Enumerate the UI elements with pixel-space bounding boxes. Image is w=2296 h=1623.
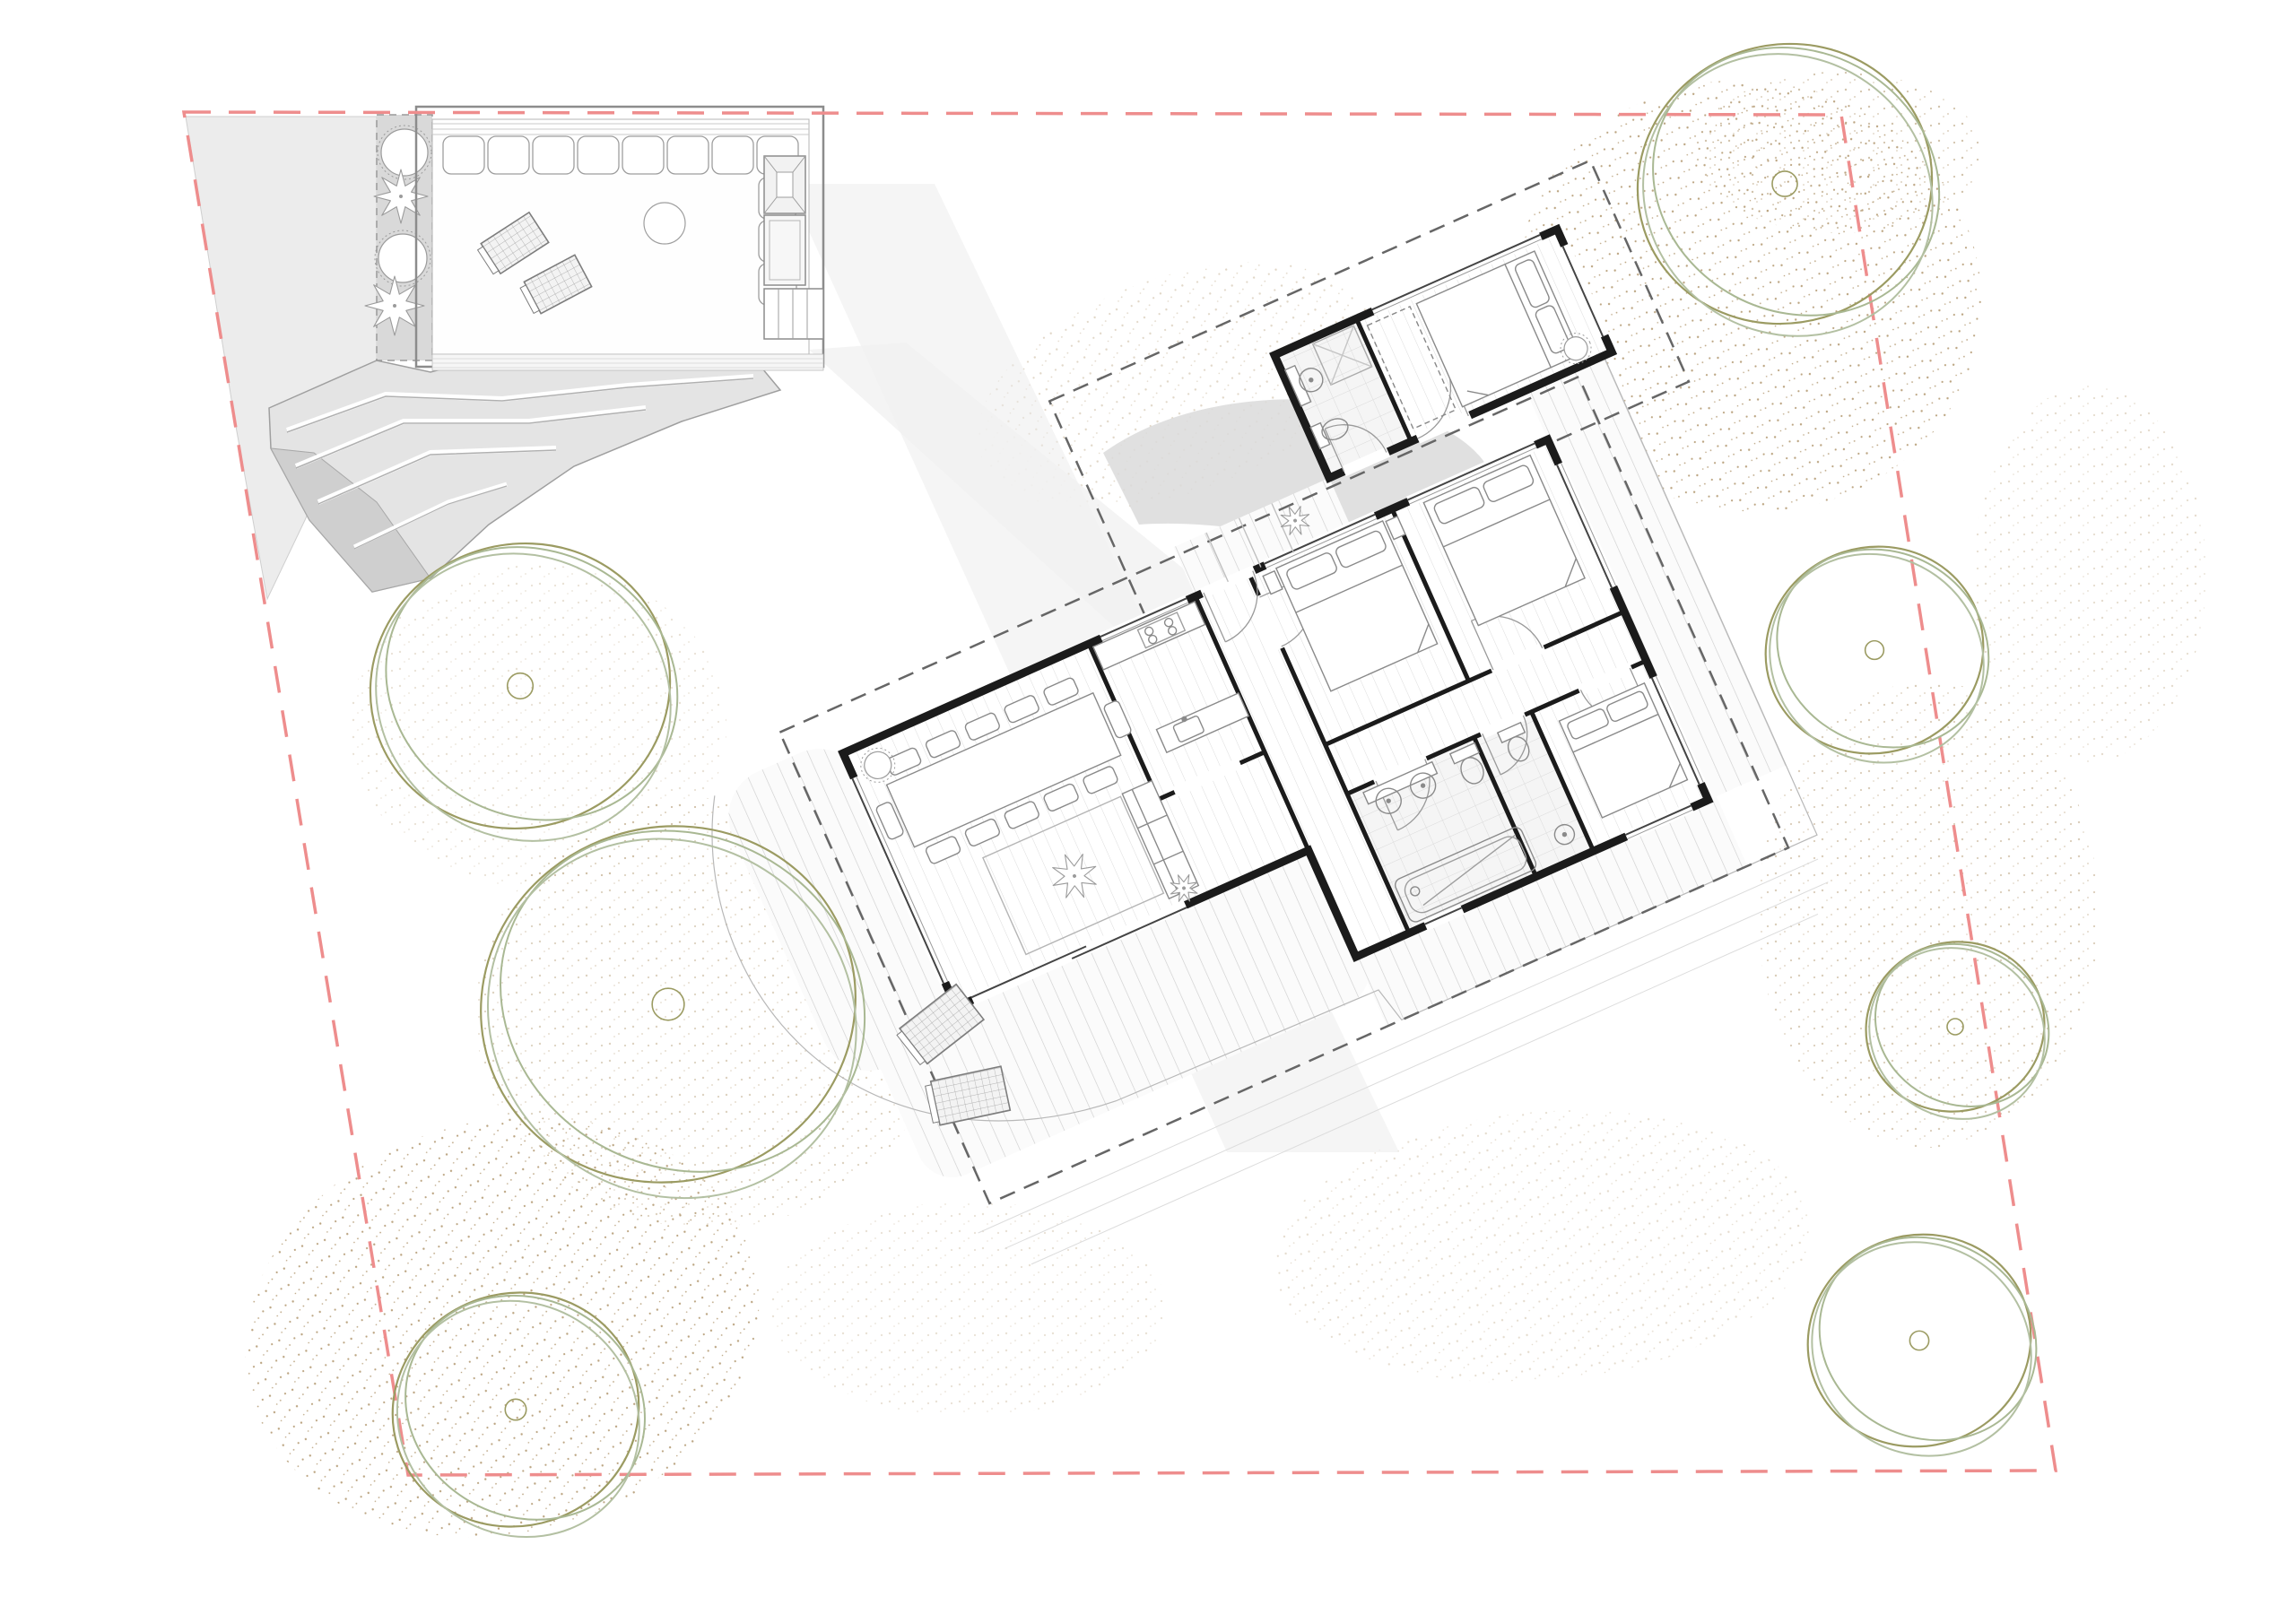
stipple-patch	[771, 1202, 1166, 1417]
stipple-patch	[1758, 681, 2099, 1148]
bench-cushion	[712, 136, 753, 174]
bench-cushion	[443, 136, 484, 174]
star-plant	[374, 169, 428, 223]
bench-cushion	[667, 136, 709, 174]
skylight-apex	[777, 172, 793, 197]
terrace-steps	[764, 289, 823, 339]
bench-cushion	[622, 136, 664, 174]
bench-cushion	[488, 136, 529, 174]
terrace-table	[644, 203, 685, 244]
bench-cushion	[578, 136, 619, 174]
bench-cushion	[533, 136, 574, 174]
stipple-patch	[1973, 386, 2206, 762]
site-plan-page	[0, 0, 2296, 1623]
site-plan-canvas	[0, 0, 2296, 1623]
stair-shaft	[764, 215, 805, 285]
